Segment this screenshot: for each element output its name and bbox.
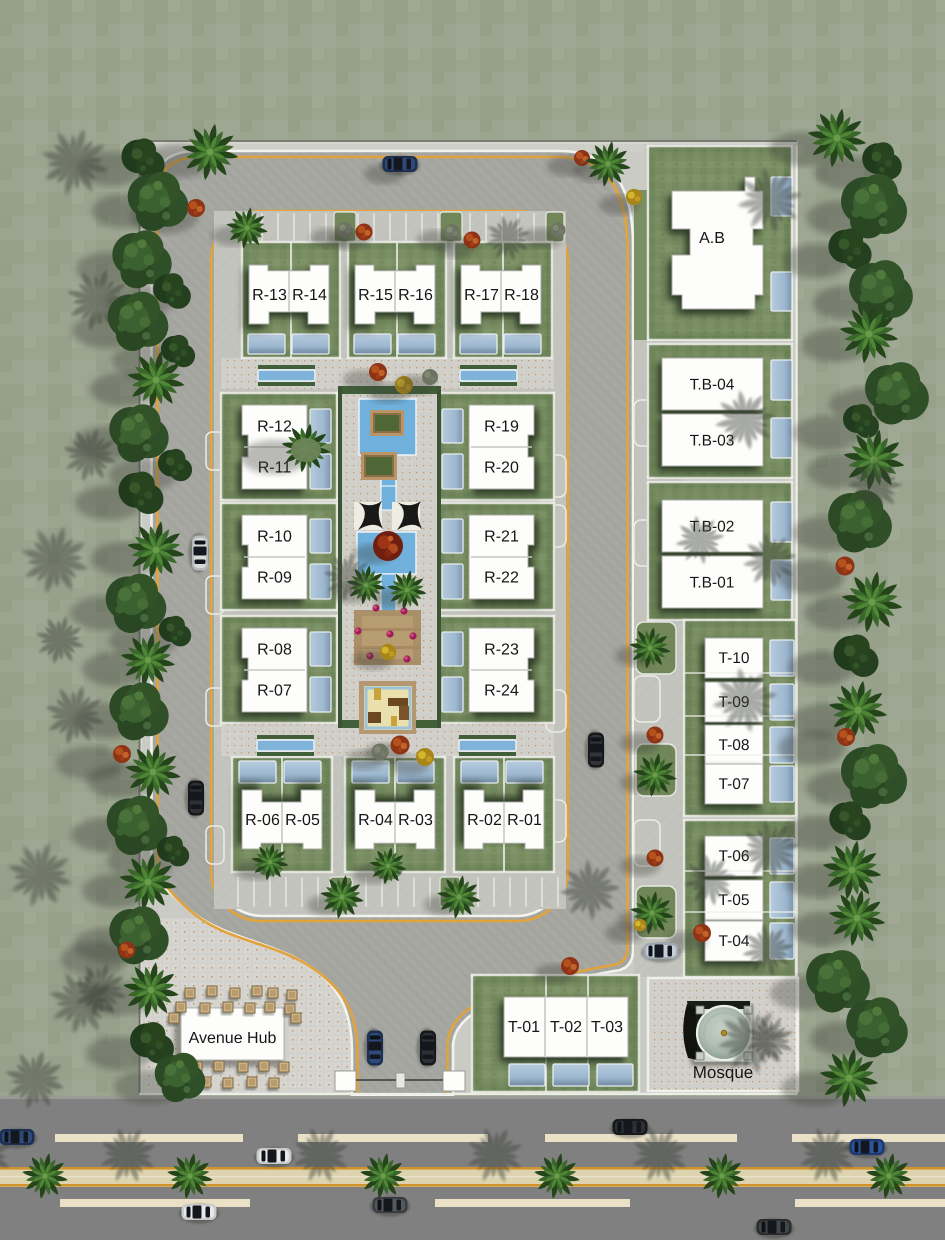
- svg-text:R-23: R-23: [484, 642, 519, 659]
- svg-text:R-08: R-08: [257, 642, 292, 659]
- svg-text:R-15: R-15: [358, 287, 393, 304]
- svg-text:R-05: R-05: [285, 812, 320, 829]
- svg-text:R-16: R-16: [398, 287, 433, 304]
- svg-text:Mosque: Mosque: [693, 1063, 753, 1082]
- svg-text:R-12: R-12: [257, 419, 292, 436]
- svg-text:R-10: R-10: [257, 529, 292, 546]
- svg-text:R-20: R-20: [484, 460, 519, 477]
- svg-text:T-03: T-03: [591, 1019, 623, 1036]
- svg-text:R-21: R-21: [484, 529, 519, 546]
- svg-text:Avenue Hub: Avenue Hub: [189, 1030, 277, 1047]
- svg-text:T-07: T-07: [718, 776, 749, 793]
- svg-text:T-05: T-05: [718, 892, 749, 909]
- svg-text:R-24: R-24: [484, 683, 519, 700]
- svg-text:R-03: R-03: [398, 812, 433, 829]
- svg-text:R-17: R-17: [464, 287, 499, 304]
- svg-text:T.B-03: T.B-03: [690, 433, 735, 450]
- svg-text:R-18: R-18: [504, 287, 539, 304]
- svg-text:T-08: T-08: [718, 737, 749, 754]
- svg-text:A.B: A.B: [699, 230, 725, 247]
- svg-text:T.B-01: T.B-01: [690, 575, 735, 592]
- svg-text:T.B-04: T.B-04: [690, 377, 735, 394]
- svg-text:R-14: R-14: [292, 287, 327, 304]
- svg-text:R-02: R-02: [467, 812, 502, 829]
- svg-text:R-04: R-04: [358, 812, 393, 829]
- svg-text:R-22: R-22: [484, 570, 519, 587]
- svg-text:T-04: T-04: [718, 933, 749, 950]
- svg-text:T-10: T-10: [718, 650, 749, 667]
- svg-text:R-09: R-09: [257, 570, 292, 587]
- svg-text:R-13: R-13: [252, 287, 287, 304]
- svg-text:R-19: R-19: [484, 419, 519, 436]
- svg-text:T-01: T-01: [508, 1019, 540, 1036]
- svg-text:T-02: T-02: [550, 1019, 582, 1036]
- svg-text:R-06: R-06: [245, 812, 280, 829]
- svg-text:R-07: R-07: [257, 683, 292, 700]
- svg-text:R-01: R-01: [507, 812, 542, 829]
